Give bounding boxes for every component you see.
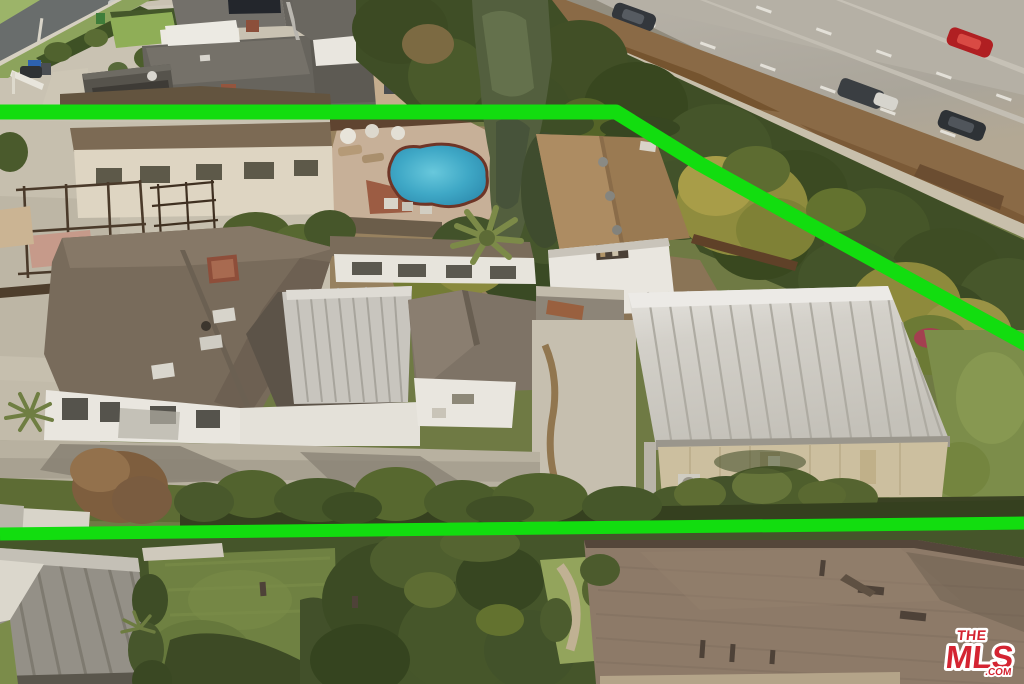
svg-text:.COM: .COM <box>985 667 1012 678</box>
